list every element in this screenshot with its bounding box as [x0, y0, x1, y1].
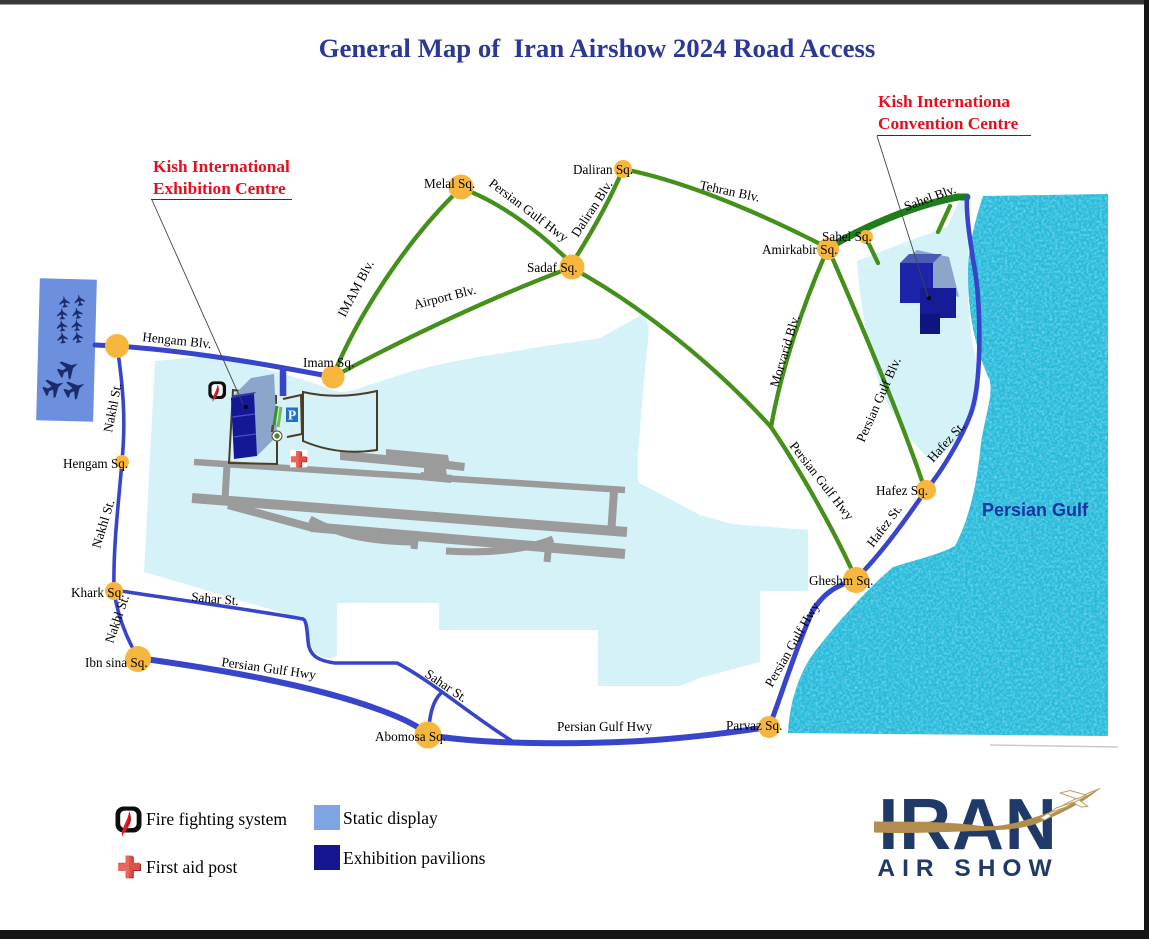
svg-text:Exhibition Centre: Exhibition Centre [153, 179, 286, 198]
svg-text:P: P [288, 408, 296, 423]
svg-text:Kish Internationa: Kish Internationa [878, 92, 1010, 111]
svg-text:Sahel Sq.: Sahel Sq. [822, 229, 872, 244]
svg-text:Exhibition pavilions: Exhibition pavilions [343, 848, 486, 868]
svg-text:Hengam Sq.: Hengam Sq. [63, 456, 128, 471]
svg-text:Hafez Sq.: Hafez Sq. [876, 483, 928, 498]
svg-text:First aid post: First aid post [146, 857, 238, 877]
svg-text:General Map of Iran Airshow 2: General Map of Iran Airshow 2024 Road Ac… [319, 33, 876, 63]
svg-text:AIR SHOW: AIR SHOW [877, 855, 1058, 882]
svg-text:Persian Gulf: Persian Gulf [982, 500, 1089, 520]
svg-text:Gheshm Sq.: Gheshm Sq. [809, 573, 873, 588]
svg-text:Kish International: Kish International [153, 157, 290, 176]
svg-text:Imam Sq.: Imam Sq. [303, 355, 354, 370]
svg-text:Fire fighting system: Fire fighting system [146, 809, 287, 829]
svg-text:Ibn sina Sq.: Ibn sina Sq. [85, 655, 148, 670]
svg-text:Amirkabir Sq.: Amirkabir Sq. [762, 242, 837, 257]
svg-text:Persian Gulf Hwy: Persian Gulf Hwy [557, 719, 653, 734]
svg-text:Convention Centre: Convention Centre [878, 114, 1019, 133]
svg-text:Sadaf Sq.: Sadaf Sq. [527, 260, 578, 275]
svg-text:Parvaz Sq.: Parvaz Sq. [726, 718, 782, 733]
svg-text:Static display: Static display [343, 808, 438, 828]
svg-text:Abomosa Sq.: Abomosa Sq. [375, 729, 446, 744]
svg-text:Daliran Sq.: Daliran Sq. [573, 162, 633, 177]
svg-text:Melal Sq.: Melal Sq. [424, 176, 475, 191]
